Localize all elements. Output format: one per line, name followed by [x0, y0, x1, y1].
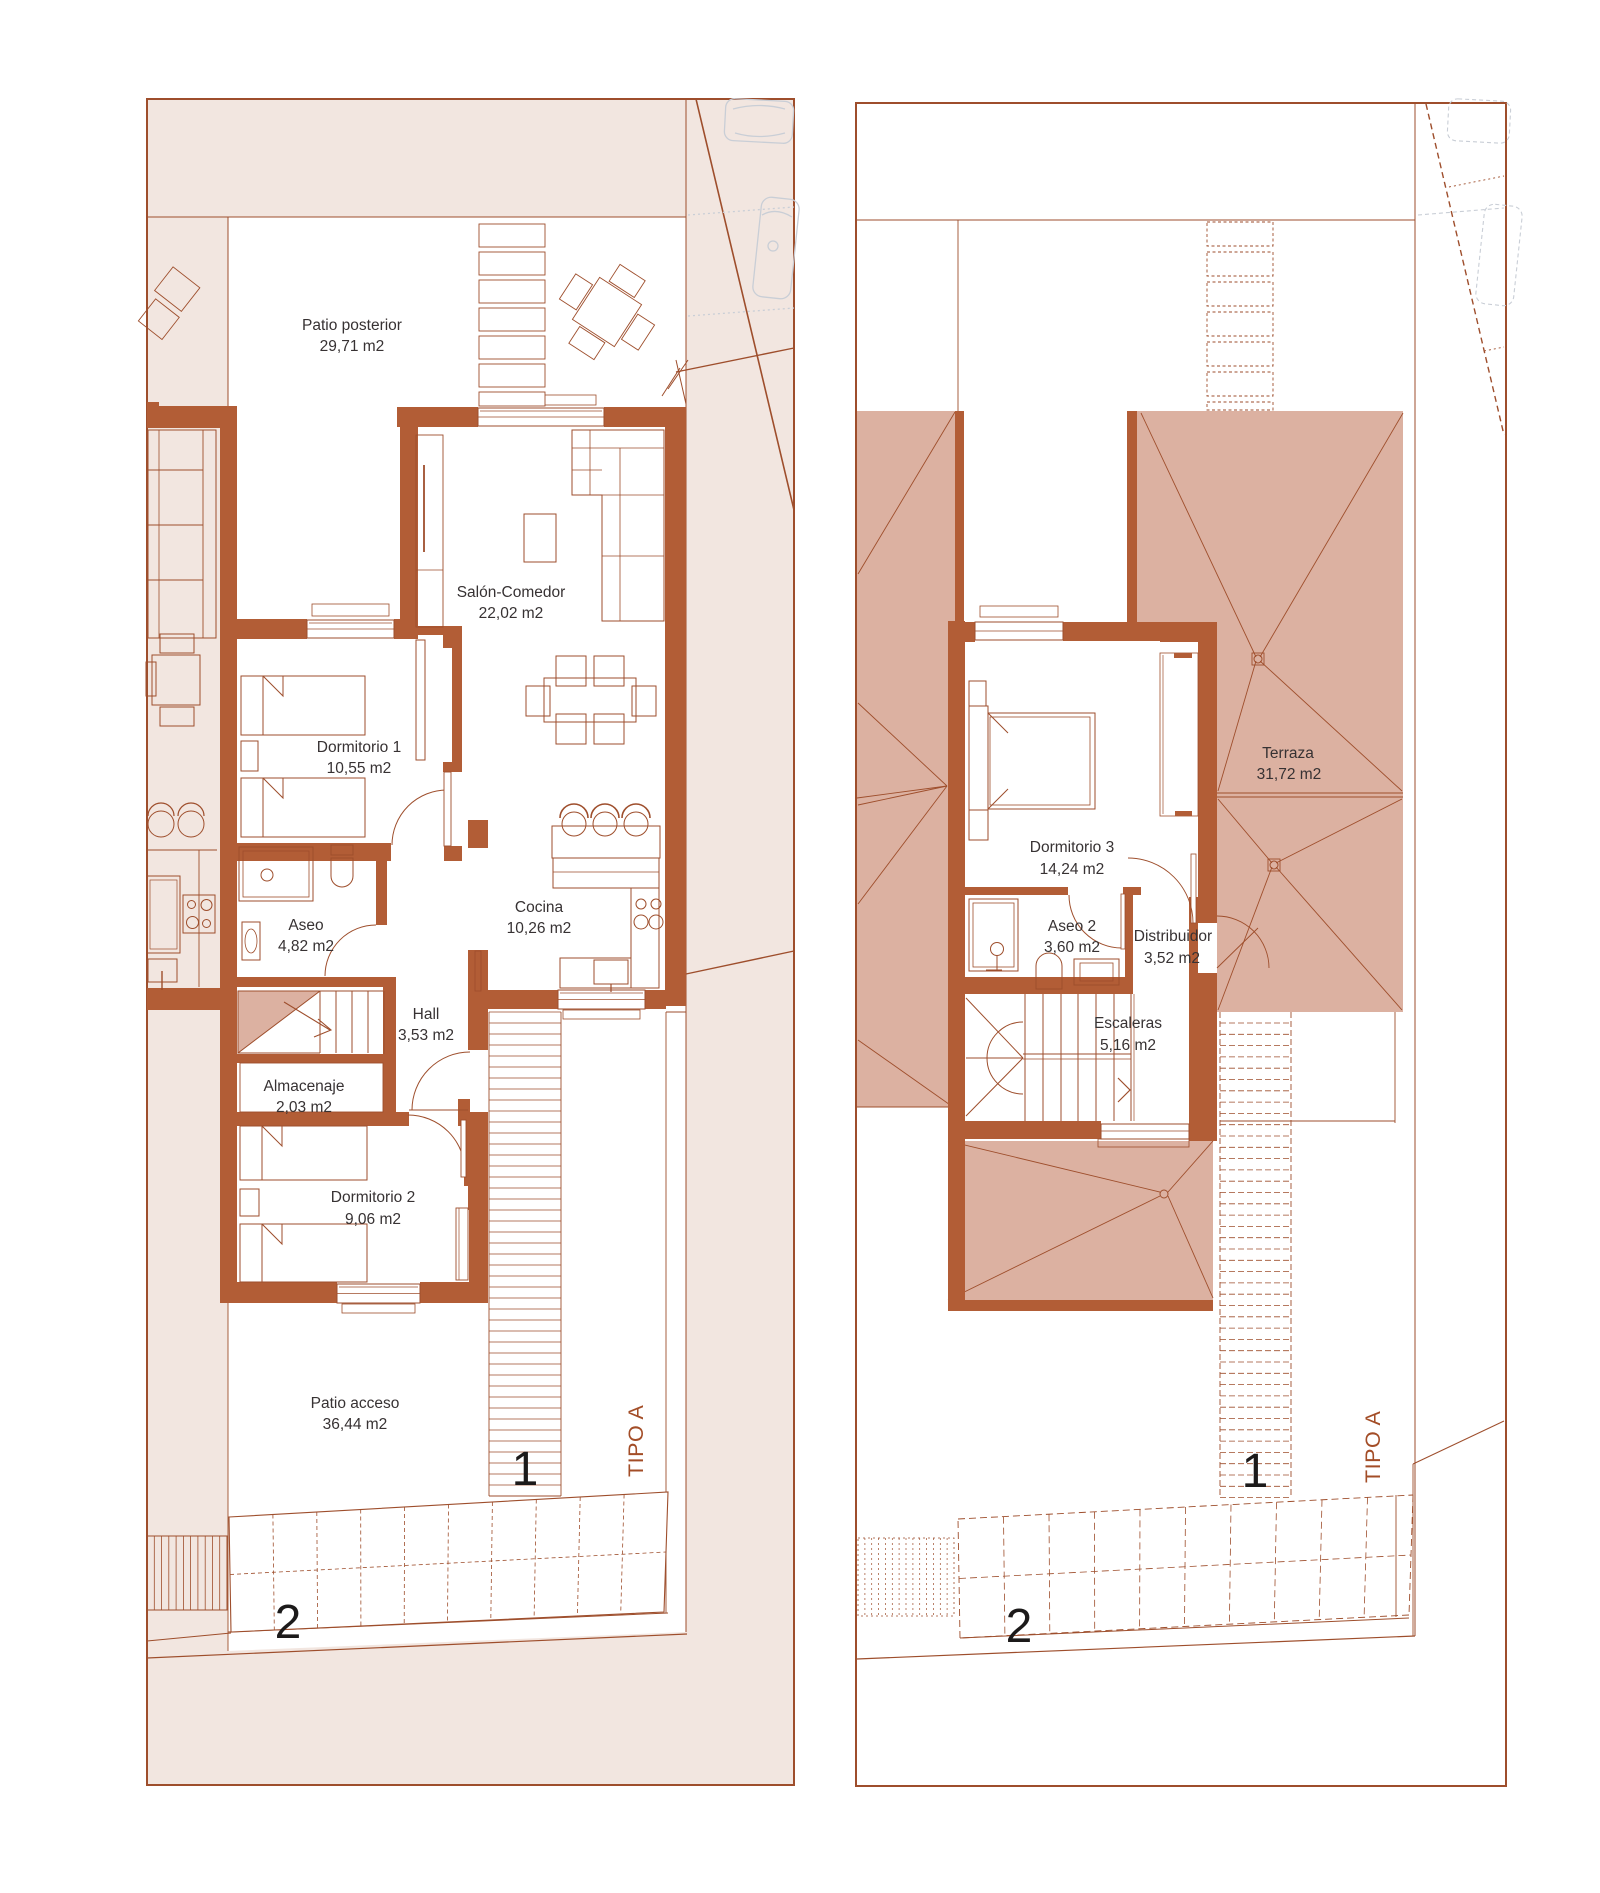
svg-text:14,24 m2: 14,24 m2 [1040, 861, 1105, 878]
svg-text:Dormitorio 1: Dormitorio 1 [317, 739, 401, 756]
svg-text:31,72 m2: 31,72 m2 [1257, 766, 1322, 783]
svg-text:2: 2 [1006, 1600, 1033, 1653]
svg-text:Dormitorio 3: Dormitorio 3 [1030, 839, 1114, 856]
svg-text:3,60 m2: 3,60 m2 [1044, 939, 1100, 956]
svg-text:Dormitorio 2: Dormitorio 2 [331, 1189, 415, 1206]
svg-text:22,02 m2: 22,02 m2 [479, 605, 544, 622]
svg-text:Distribuidor: Distribuidor [1134, 928, 1212, 945]
svg-text:10,26 m2: 10,26 m2 [507, 920, 572, 937]
svg-text:Cocina: Cocina [515, 899, 564, 916]
svg-text:3,53 m2: 3,53 m2 [398, 1027, 454, 1044]
svg-text:36,44 m2: 36,44 m2 [323, 1416, 388, 1433]
svg-text:10,55 m2: 10,55 m2 [327, 760, 392, 777]
svg-text:Patio posterior: Patio posterior [302, 317, 402, 334]
svg-text:Salón-Comedor: Salón-Comedor [457, 584, 566, 601]
svg-text:TIPO A: TIPO A [1361, 1411, 1385, 1483]
svg-text:Patio acceso: Patio acceso [311, 1395, 400, 1412]
svg-text:Escaleras: Escaleras [1094, 1015, 1162, 1032]
svg-text:TIPO A: TIPO A [624, 1405, 648, 1477]
svg-text:1: 1 [512, 1443, 539, 1496]
svg-text:9,06 m2: 9,06 m2 [345, 1211, 401, 1228]
svg-text:Aseo: Aseo [288, 917, 323, 934]
svg-text:2,03 m2: 2,03 m2 [276, 1099, 332, 1116]
svg-text:Terraza: Terraza [1262, 745, 1314, 762]
svg-text:Aseo 2: Aseo 2 [1048, 918, 1096, 935]
svg-text:4,82 m2: 4,82 m2 [278, 938, 334, 955]
svg-text:29,71 m2: 29,71 m2 [320, 338, 385, 355]
svg-text:Hall: Hall [413, 1006, 440, 1023]
svg-text:1: 1 [1242, 1445, 1269, 1498]
svg-text:Almacenaje: Almacenaje [264, 1078, 345, 1095]
svg-text:3,52 m2: 3,52 m2 [1144, 950, 1200, 967]
svg-text:5,16 m2: 5,16 m2 [1100, 1037, 1156, 1054]
svg-text:2: 2 [275, 1596, 302, 1649]
